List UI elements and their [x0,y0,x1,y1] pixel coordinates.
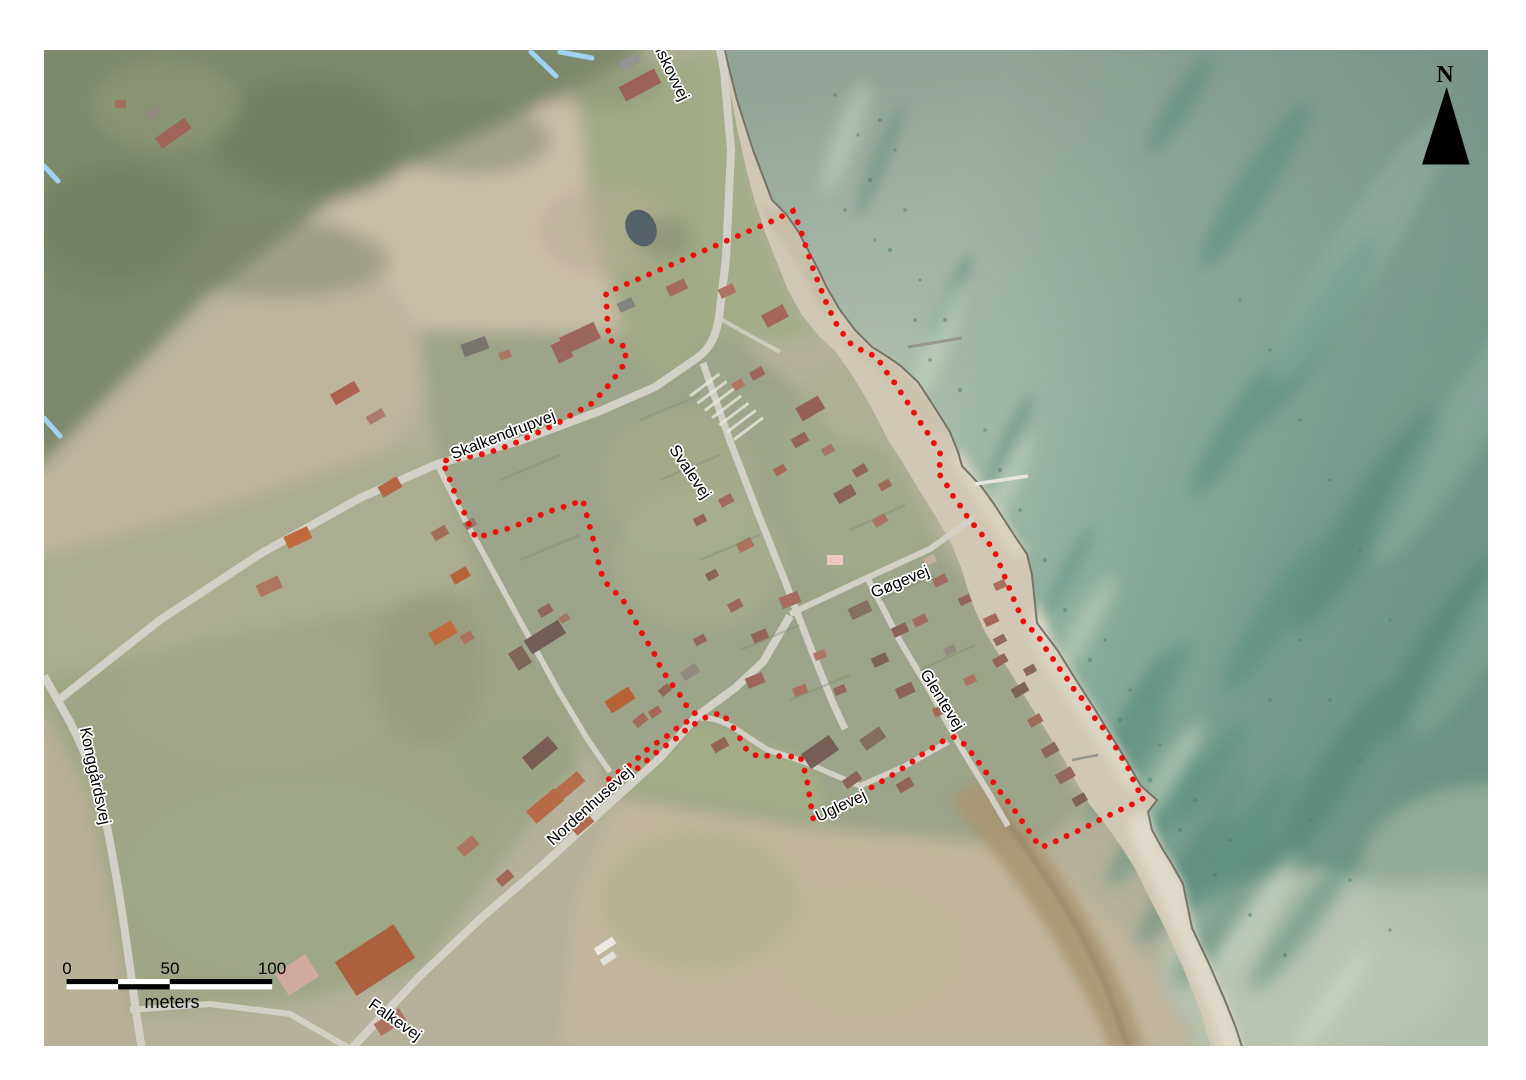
svg-text:meters: meters [144,992,199,1012]
svg-text:N: N [1436,62,1454,88]
svg-text:0: 0 [62,959,71,978]
svg-text:50: 50 [161,959,180,978]
svg-text:100: 100 [258,959,286,978]
